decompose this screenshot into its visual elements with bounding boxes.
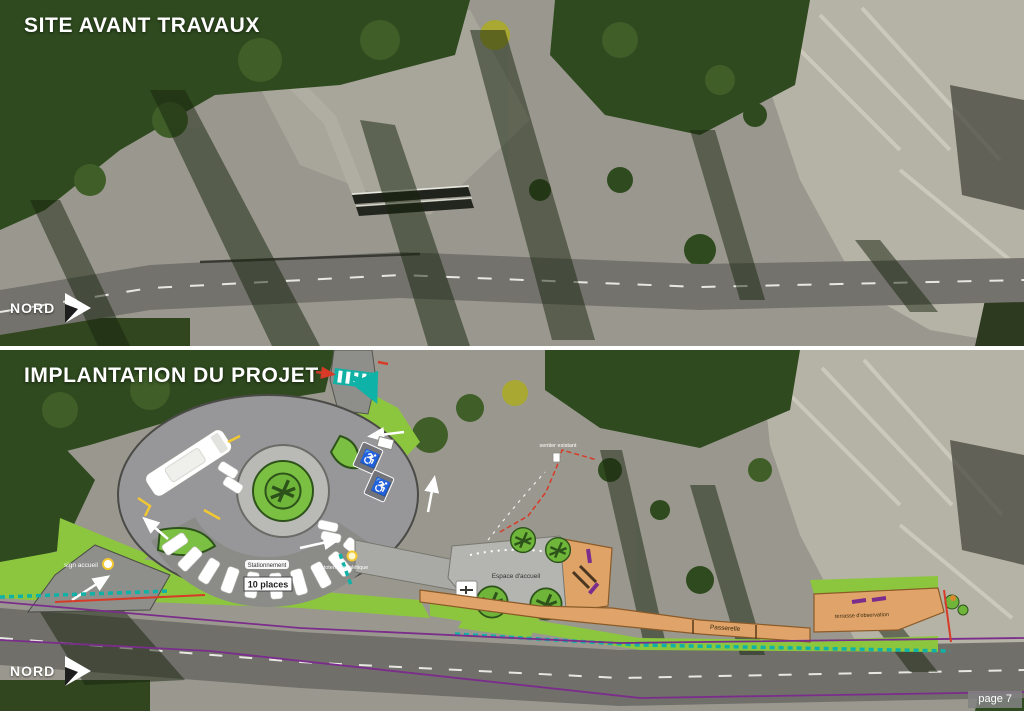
page-title-project: IMPLANTATION DU PROJET [24, 364, 319, 388]
document-page: SITE AVANT TRAVAUX NORD [0, 0, 1024, 711]
panel-project-layout: ♿ ♿ [0, 350, 1024, 711]
tree-icon [546, 538, 571, 563]
panel-site-before: SITE AVANT TRAVAUX NORD [0, 0, 1024, 346]
north-label: NORD [10, 663, 55, 679]
welcome-sign-marker [103, 559, 113, 569]
north-arrow-icon [63, 655, 93, 687]
island-tree-icon [265, 473, 300, 508]
page-title-before: SITE AVANT TRAVAUX [24, 14, 260, 38]
parking-count-label: 10 places [248, 580, 289, 590]
project-plan: ♿ ♿ [0, 350, 1024, 711]
aerial-photo-before [0, 0, 1024, 346]
totem-marker [348, 552, 357, 561]
welcome-area-label: Espace d'accueil [492, 573, 541, 580]
existing-trail-label: sentier existant [540, 443, 577, 449]
totem-label: totem signalétique [324, 565, 369, 571]
north-indicator-before: NORD [10, 292, 93, 324]
north-arrow-icon [63, 292, 93, 324]
north-label: NORD [10, 300, 55, 316]
welcome-sign-label: sign accueil [64, 562, 99, 569]
parking-zone-label: Stationnement [248, 563, 287, 569]
north-indicator-project: NORD [10, 655, 93, 687]
tree-icon [511, 528, 536, 553]
central-island [237, 445, 329, 537]
page-number-badge: page 7 [968, 691, 1022, 708]
trail-sign-icon [553, 453, 560, 462]
